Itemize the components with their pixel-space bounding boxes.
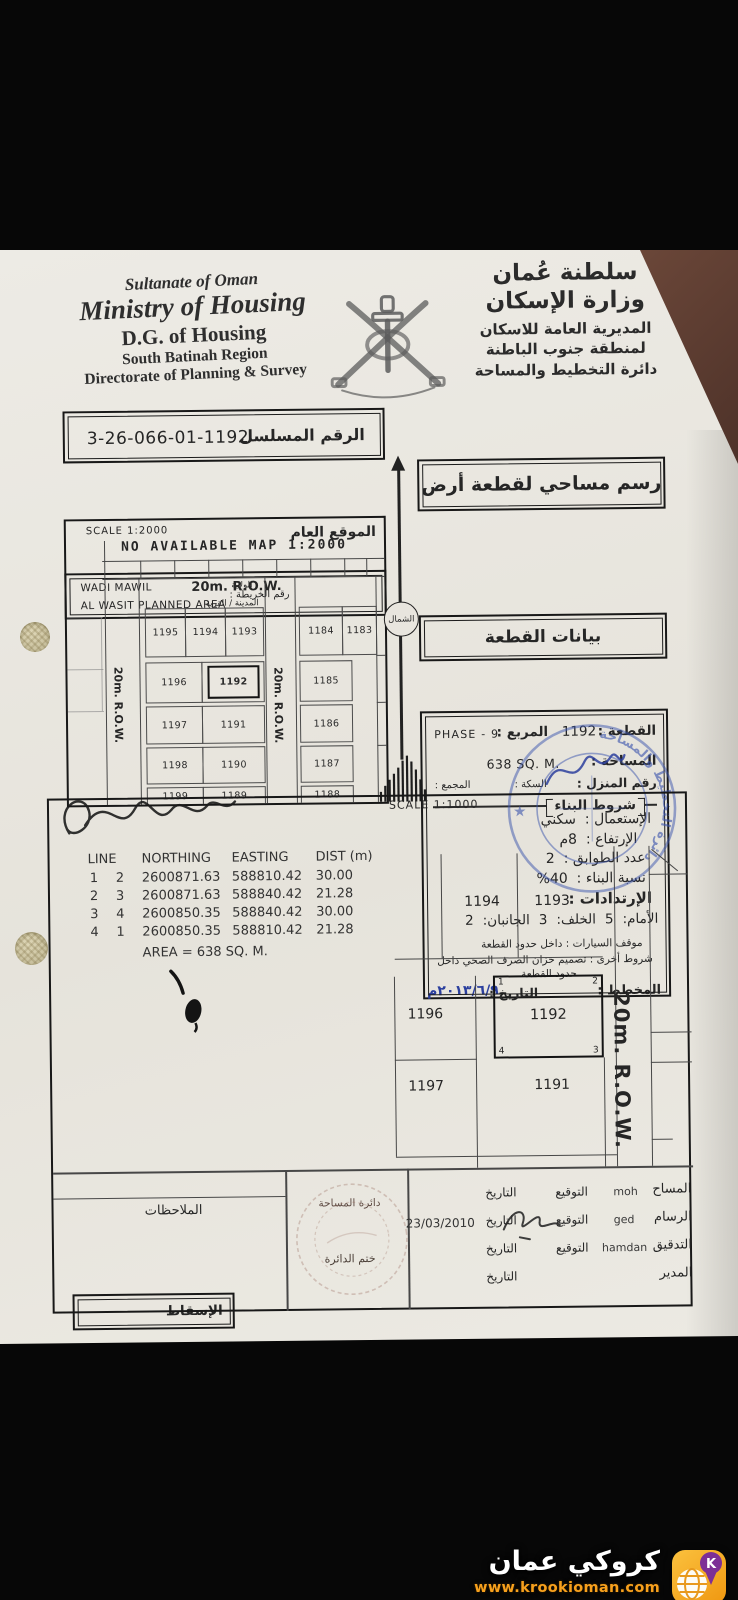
- corner-4: 4: [499, 1046, 505, 1056]
- map-line: [376, 655, 389, 656]
- letterhead-line: وزارة الإسكان: [461, 286, 669, 316]
- role-director: المدير: [656, 1265, 692, 1280]
- map-line: [651, 849, 678, 871]
- plot-1196: 1196: [145, 662, 202, 704]
- table-line: [285, 1170, 288, 1311]
- map-line: [394, 977, 397, 1157]
- map-line: [138, 579, 142, 808]
- row-label-left: 20m. R.O.W.: [111, 667, 125, 787]
- computed-area: AREA = 638 SQ. M.: [143, 944, 268, 960]
- ink-blot: [163, 967, 210, 1034]
- dist: 30.00: [316, 868, 353, 883]
- coords-row: 1 2 2600871.63 588810.42 30.00: [90, 868, 353, 886]
- line-from: 2: [90, 889, 116, 904]
- line-to: 1: [116, 925, 142, 940]
- easting: 588810.42: [232, 869, 316, 885]
- map-line: [396, 1154, 617, 1158]
- plot-1190: 1190: [202, 746, 265, 784]
- serial-number-box: 3-26-066-01-1192 الرقم المسلسل: [62, 408, 385, 464]
- detail-plot-1191: 1191: [530, 1077, 574, 1093]
- dist: 21.28: [316, 922, 353, 937]
- checker-name: hamdan: [602, 1241, 647, 1255]
- detail-plot-1196: 1196: [403, 1006, 447, 1022]
- watermark-url: www.krookioman.com: [474, 1580, 660, 1596]
- scanned-krooki-document: Sultanate of Oman Ministry of Housing D.…: [0, 0, 738, 1600]
- survey-form: Sultanate of Oman Ministry of Housing D.…: [0, 246, 738, 1372]
- surveyor-name: moh: [613, 1185, 638, 1198]
- detail-plot-1194: 1194: [460, 893, 504, 909]
- letterhead-line: دائرة التخطيط والمساحة: [462, 358, 670, 381]
- overview-map: SCALE 1:2000 NO AVAILABLE MAP 1:2000 الم…: [64, 516, 389, 808]
- table-line: [53, 1196, 285, 1200]
- line-from: 1: [90, 871, 116, 886]
- line-from: 3: [90, 907, 116, 922]
- serial-number-label: الرقم المسلسل: [239, 425, 365, 445]
- document-title-box: رسم مساحي لقطعة أرض: [417, 457, 666, 512]
- northing: 2600850.35: [142, 906, 232, 922]
- role-checker: التدقيق: [652, 1237, 692, 1252]
- coords-row: 3 4 2600850.35 588840.42 30.00: [90, 904, 353, 922]
- date-label: التاريخ: [486, 1213, 517, 1227]
- watermark-title: كروكي عمان: [489, 1546, 660, 1577]
- draftsman-name: ged: [614, 1213, 635, 1226]
- overview-map-scale: SCALE 1:2000: [86, 525, 169, 537]
- plot-1183: 1183: [342, 606, 378, 655]
- map-line: [208, 560, 209, 578]
- plot-1192-highlight: 1192: [207, 665, 259, 699]
- map-line: [68, 711, 104, 712]
- ministry-letterhead-english: Sultanate of Oman Ministry of Housing D.…: [51, 266, 336, 391]
- role-draftsman: الرسام: [654, 1209, 692, 1224]
- map-line: [649, 873, 688, 874]
- map-line: [294, 577, 298, 807]
- northing: 2600850.35: [142, 924, 232, 940]
- plot-1187: 1187: [300, 745, 353, 783]
- detail-plot-1193: 1193: [530, 893, 574, 909]
- line-to: 2: [116, 871, 142, 886]
- map-line: [377, 745, 389, 746]
- northing: 2600871.63: [142, 888, 232, 904]
- map-line: [140, 561, 141, 579]
- map-line: [651, 1061, 692, 1062]
- map-line: [67, 617, 103, 618]
- coords-row: 2 3 2600871.63 588840.42 21.28: [90, 886, 353, 904]
- table-line: [53, 1165, 693, 1174]
- map-line: [276, 559, 277, 577]
- easting: 588840.42: [232, 887, 316, 903]
- map-line: [441, 854, 443, 958]
- map-line: [651, 1031, 692, 1032]
- plot-1184: 1184: [299, 606, 344, 655]
- map-line: [652, 1139, 673, 1140]
- letterhead-line: سلطنة عُمان: [461, 259, 669, 289]
- document-title: رسم مساحي لقطعة أرض: [421, 472, 661, 497]
- map-line: [344, 558, 345, 576]
- easting: 588840.42: [232, 905, 316, 921]
- drafting-date: 23/03/2010: [406, 1216, 475, 1231]
- line-to: 4: [116, 907, 142, 922]
- coords-header-row: LINE NORTHING EASTING DIST (m): [87, 849, 372, 867]
- paper-sheet: Sultanate of Oman Ministry of Housing D.…: [0, 250, 738, 1368]
- northing: 2600871.63: [142, 870, 232, 886]
- plot-1197: 1197: [146, 706, 203, 745]
- plot-1198: 1198: [146, 747, 203, 785]
- plot-1195: 1195: [145, 608, 187, 657]
- pin-k-icon: K: [697, 1551, 725, 1587]
- easting: 588810.42: [232, 923, 316, 939]
- map-line: [475, 976, 478, 1168]
- date-label: التاريخ: [485, 1185, 516, 1199]
- map-line: [604, 1057, 606, 1166]
- col-header-northing: NORTHING: [141, 851, 231, 867]
- oman-national-emblem-icon: [323, 291, 452, 400]
- overview-map-title: الموقع العام: [290, 524, 375, 541]
- col-header-dist: DIST (m): [315, 849, 372, 865]
- detail-row-label: 20m. R.O.W.: [609, 992, 635, 1157]
- map-line: [101, 617, 103, 711]
- corner-3: 3: [593, 1045, 599, 1055]
- ministry-letterhead-arabic: سلطنة عُمان وزارة الإسكان المديرية العام…: [461, 259, 670, 381]
- map-line: [517, 853, 519, 957]
- plot-1193: 1193: [225, 607, 265, 656]
- line-from: 4: [90, 925, 116, 940]
- notes-label: الملاحظات: [113, 1203, 233, 1219]
- letterhead-line: المديرية العامة للاسكان: [461, 318, 669, 341]
- map-line: [242, 559, 243, 577]
- plot-1194: 1194: [185, 608, 227, 657]
- corner-1: 1: [498, 977, 504, 987]
- subject-plot-1192: 1 2 3 4 1192: [493, 974, 604, 1058]
- map-line: [366, 558, 367, 576]
- letterhead-line: لمنطقة جنوب الباطنة: [462, 338, 670, 361]
- signature-label: التوقيع: [555, 1185, 588, 1199]
- watermark-app-icon: K: [672, 1550, 726, 1600]
- detail-plot-1197: 1197: [404, 1078, 448, 1094]
- col-header-line: LINE: [87, 852, 141, 868]
- north-label-circle: الشمال: [384, 601, 419, 636]
- dist: 30.00: [316, 904, 353, 919]
- plot-data-title: بيانات القطعة: [485, 626, 602, 647]
- corner-2: 2: [592, 976, 598, 986]
- map-line: [174, 560, 175, 578]
- plot-1186: 1186: [300, 704, 353, 743]
- dist: 21.28: [316, 886, 353, 901]
- watermark-letter: K: [706, 1557, 717, 1572]
- faint-office-stamp: [291, 1175, 412, 1304]
- signature-label: التوقيع: [556, 1241, 589, 1255]
- map-line: [310, 559, 311, 577]
- map-line: [648, 846, 653, 1166]
- complex-label: المجمع :: [435, 780, 471, 791]
- date-label: التاريخ: [486, 1241, 517, 1255]
- map-line: [395, 956, 603, 959]
- plot-1191: 1191: [202, 705, 265, 744]
- map-line: [104, 541, 108, 807]
- map-line: [67, 669, 103, 670]
- map-line: [395, 1059, 477, 1061]
- square-value: PHASE - 9: [434, 728, 499, 742]
- row-label-horizontal: 20m. R.O.W.: [166, 579, 306, 596]
- date-label: التاريخ: [486, 1269, 517, 1283]
- plot-data-title-box: بيانات القطعة: [419, 613, 668, 662]
- serial-number-value: 3-26-066-01-1192: [87, 427, 250, 449]
- detail-section: LINE NORTHING EASTING DIST (m) 1 2 26008…: [47, 791, 693, 1313]
- plot-1185: 1185: [299, 660, 352, 702]
- coords-row: 4 1 2600850.35 588810.42 21.28: [90, 922, 353, 940]
- row-label-middle: 20m. R.O.W.: [271, 667, 285, 787]
- north-arrow-head-icon: [391, 456, 405, 471]
- line-to: 3: [116, 889, 142, 904]
- col-header-easting: EASTING: [231, 850, 315, 866]
- subject-plot-number: 1192: [495, 1006, 601, 1023]
- role-surveyor: المساح: [653, 1181, 691, 1196]
- map-line: [377, 702, 389, 703]
